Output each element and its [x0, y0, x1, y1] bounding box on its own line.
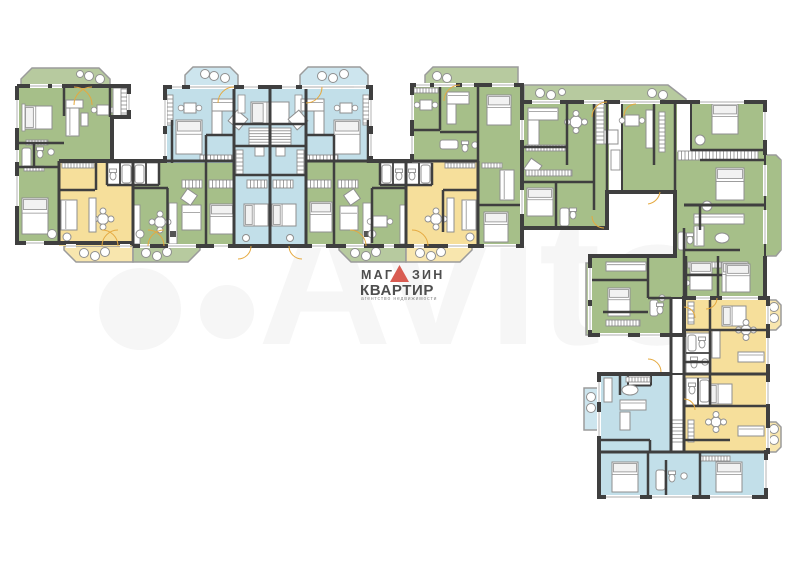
- svg-text:ЗИН: ЗИН: [412, 268, 444, 282]
- svg-text:МАГ: МАГ: [361, 268, 394, 282]
- svg-text:агентство недвижимости: агентство недвижимости: [361, 296, 437, 302]
